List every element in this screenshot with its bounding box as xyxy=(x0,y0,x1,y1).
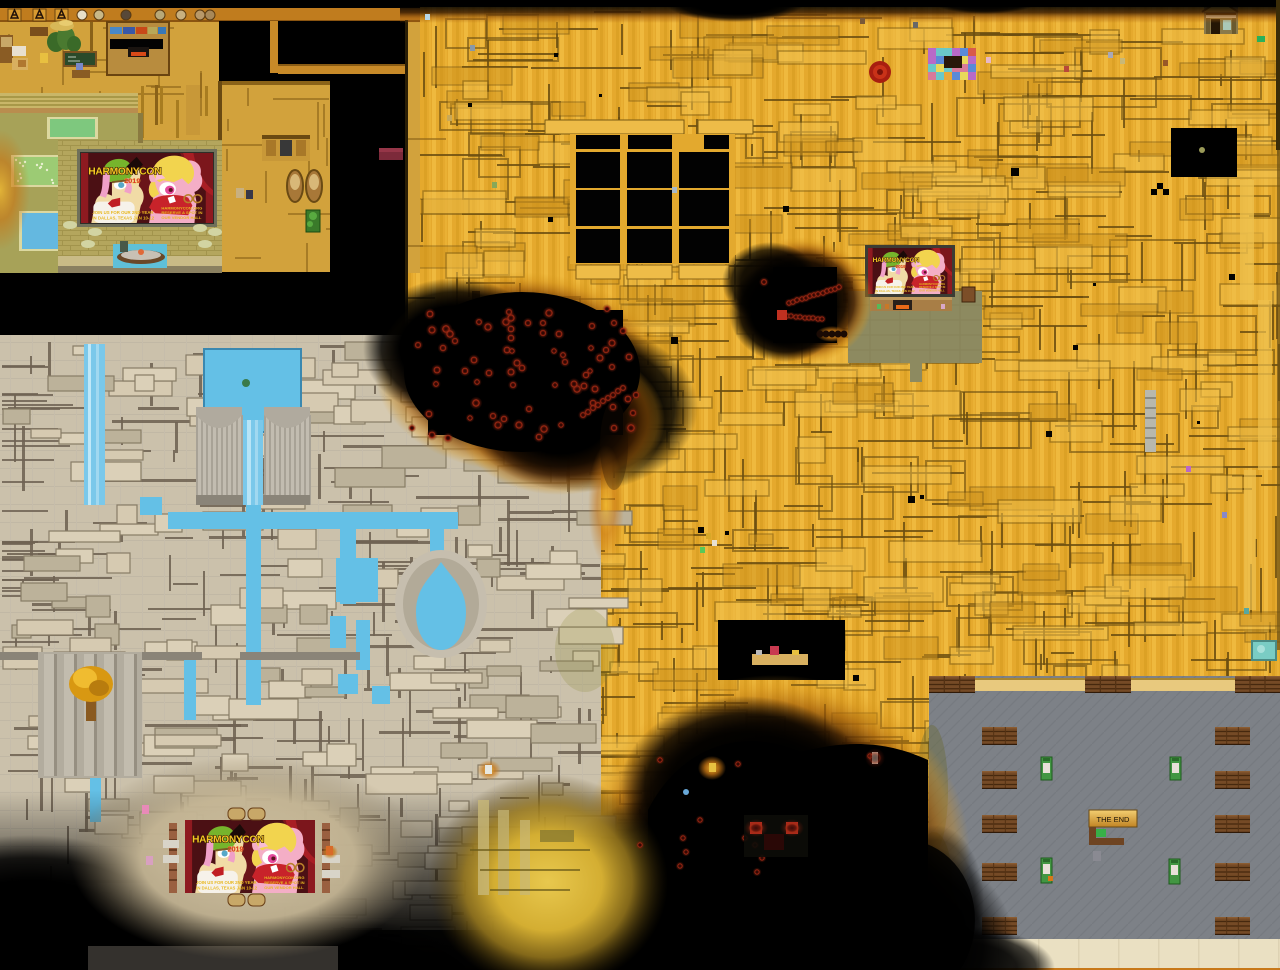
svg-text:THE END: THE END xyxy=(1097,815,1131,824)
